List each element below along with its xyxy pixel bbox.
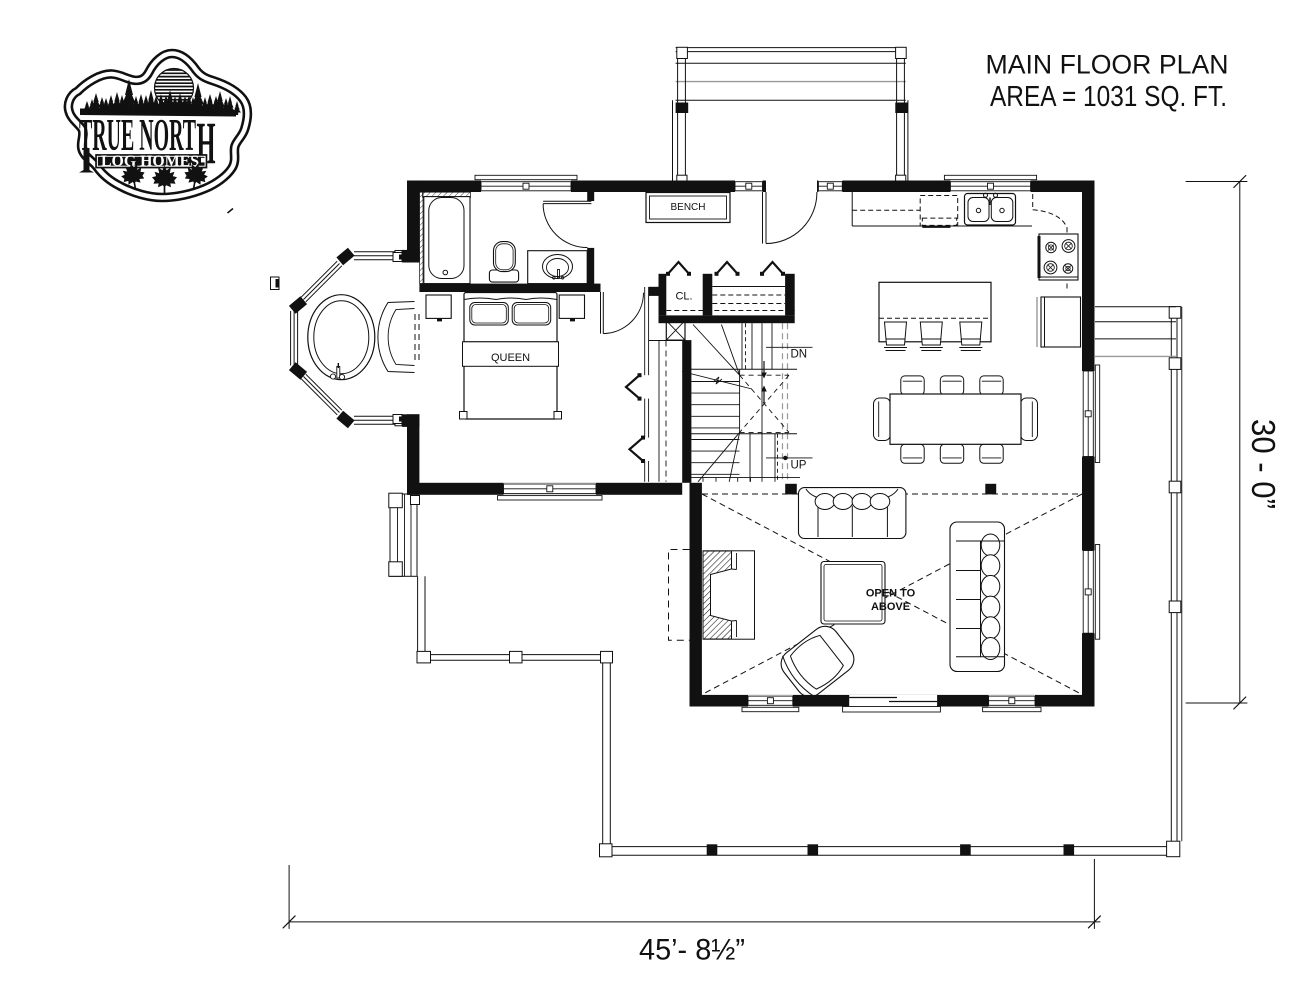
svg-text:LOG HOMES: LOG HOMES bbox=[101, 153, 199, 170]
svg-text:QUEEN: QUEEN bbox=[491, 352, 530, 364]
svg-text:30 - 0”: 30 - 0” bbox=[1245, 419, 1282, 509]
svg-text:ABOVE: ABOVE bbox=[871, 601, 910, 613]
svg-text:CL.: CL. bbox=[675, 291, 692, 303]
svg-text:OPEN TO: OPEN TO bbox=[866, 588, 916, 600]
svg-text:DN: DN bbox=[791, 349, 808, 361]
svg-text:MAIN FLOOR PLAN: MAIN FLOOR PLAN bbox=[986, 50, 1229, 80]
svg-text:AREA = 1031 SQ. FT.: AREA = 1031 SQ. FT. bbox=[990, 81, 1227, 113]
svg-text:BENCH: BENCH bbox=[670, 202, 705, 213]
svg-text:UP: UP bbox=[791, 460, 807, 472]
svg-text:45’- 8½”: 45’- 8½” bbox=[639, 934, 745, 967]
